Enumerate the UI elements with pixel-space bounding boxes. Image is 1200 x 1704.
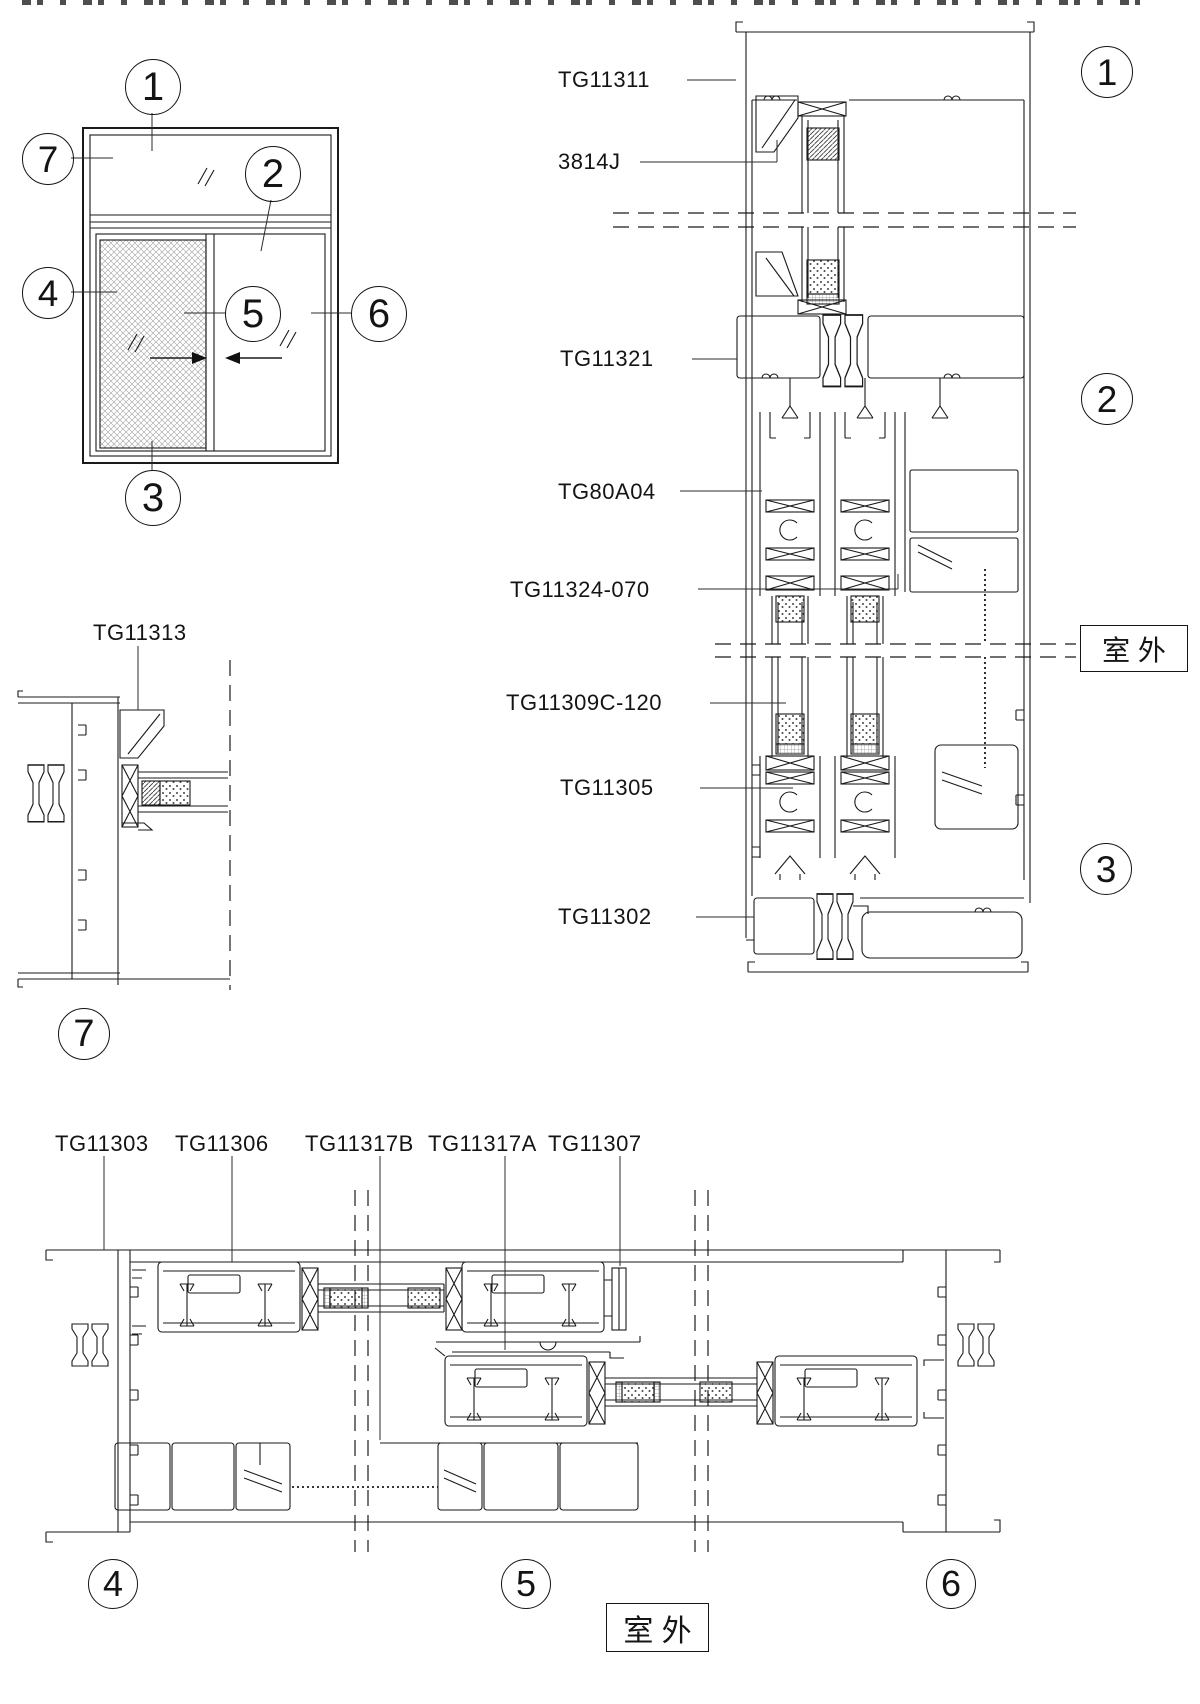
balloon-number: 6 (368, 294, 390, 334)
part-label-bottom-rail: TG11305 (560, 775, 654, 801)
part-label-head-frame: TG11311 (558, 67, 650, 93)
part-label-interlock-b: TG11317B (305, 1131, 414, 1157)
screen-track-column (905, 412, 1018, 768)
balloon-number: 1 (1097, 54, 1118, 91)
balloon-number: 4 (103, 1566, 123, 1602)
screen-clip-profile (935, 745, 1018, 829)
cad-linework (0, 0, 1200, 1704)
balloon-number: 2 (262, 154, 284, 194)
outdoor-marker-horizontal-section: 室 外 (606, 1603, 709, 1652)
part-label-mullion: TG11313 (93, 620, 187, 646)
elevation-balloon-3: 3 (125, 470, 181, 526)
elevation-balloon-4: 4 (22, 267, 74, 319)
elevation-balloon-1: 1 (125, 59, 181, 115)
window-shop-drawing-sheet: 1 7 2 4 5 6 3 TG11311 3814J TG11321 TG80… (0, 0, 1200, 1704)
part-label-glazing-bead: 3814J (558, 149, 620, 175)
break-lines-horizontal-section (355, 1190, 708, 1552)
balloon-number: 1 (142, 67, 164, 107)
balloon-number: 7 (73, 1015, 94, 1053)
part-label-sash-profile: TG11309C-120 (506, 690, 662, 716)
sill-profile (746, 894, 1028, 972)
part-label-transom: TG11321 (560, 346, 654, 372)
elevation-drawing (71, 113, 351, 470)
outdoor-marker-vertical-section: 室 外 (1080, 625, 1188, 672)
balloon-number: 3 (142, 478, 164, 518)
balloon-number: 7 (38, 141, 59, 178)
vsec-balloon-1: 1 (1081, 46, 1133, 98)
hsec-balloon-4: 4 (88, 1559, 138, 1609)
balloon-number: 4 (38, 275, 59, 312)
balloon-number: 6 (941, 1566, 961, 1602)
horizontal-section-drawing (46, 1156, 1000, 1552)
elevation-balloon-6: 6 (351, 286, 407, 342)
balloon-number: 5 (516, 1566, 536, 1602)
part-label-track: TG80A04 (558, 479, 656, 505)
balloon-number: 3 (1096, 851, 1117, 888)
elevation-balloon-2: 2 (245, 146, 301, 202)
vsec-balloon-2: 2 (1081, 373, 1133, 425)
vsec-leader-lines (640, 80, 898, 917)
transom-profile (737, 315, 1024, 386)
elevation-balloon-7: 7 (22, 133, 74, 185)
hsec-balloon-5: 5 (501, 1559, 551, 1609)
detail-7-drawing (18, 646, 230, 990)
balloon-number: 5 (242, 294, 264, 334)
part-label-bead: TG11307 (548, 1131, 642, 1157)
part-label-sill: TG11302 (558, 904, 652, 930)
detail-7-balloon: 7 (58, 1008, 110, 1060)
part-label-sash: TG11306 (175, 1131, 269, 1157)
hsec-balloon-6: 6 (926, 1559, 976, 1609)
part-label-filler: TG11324-070 (510, 577, 650, 603)
elevation-balloon-5: 5 (225, 286, 281, 342)
vertical-section-drawing (613, 22, 1076, 972)
vsec-balloon-3: 3 (1080, 843, 1132, 895)
screen-frame-row (115, 1443, 638, 1510)
balloon-number: 2 (1097, 381, 1118, 418)
part-label-jamb: TG11303 (55, 1131, 149, 1157)
part-label-interlock-a: TG11317A (428, 1131, 537, 1157)
